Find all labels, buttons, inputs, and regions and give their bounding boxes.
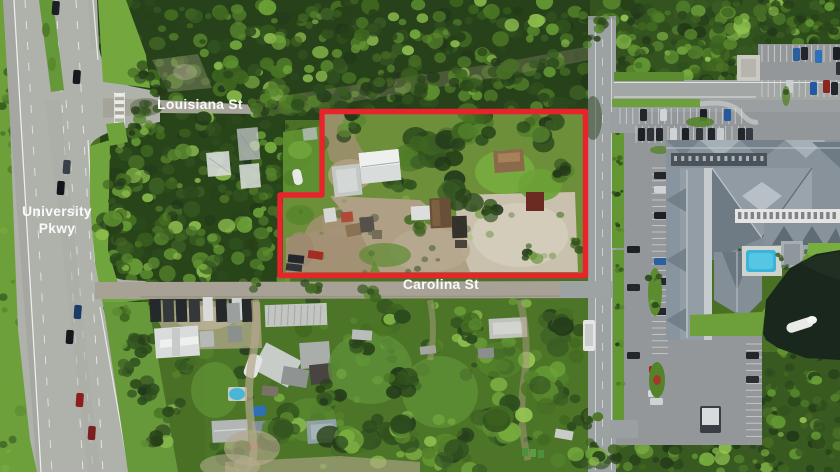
svg-text:Carolina St: Carolina St	[403, 277, 479, 292]
svg-text:Louisiana St: Louisiana St	[157, 97, 243, 112]
svg-text:University: University	[22, 204, 92, 219]
svg-text:Pkwy: Pkwy	[39, 221, 76, 236]
